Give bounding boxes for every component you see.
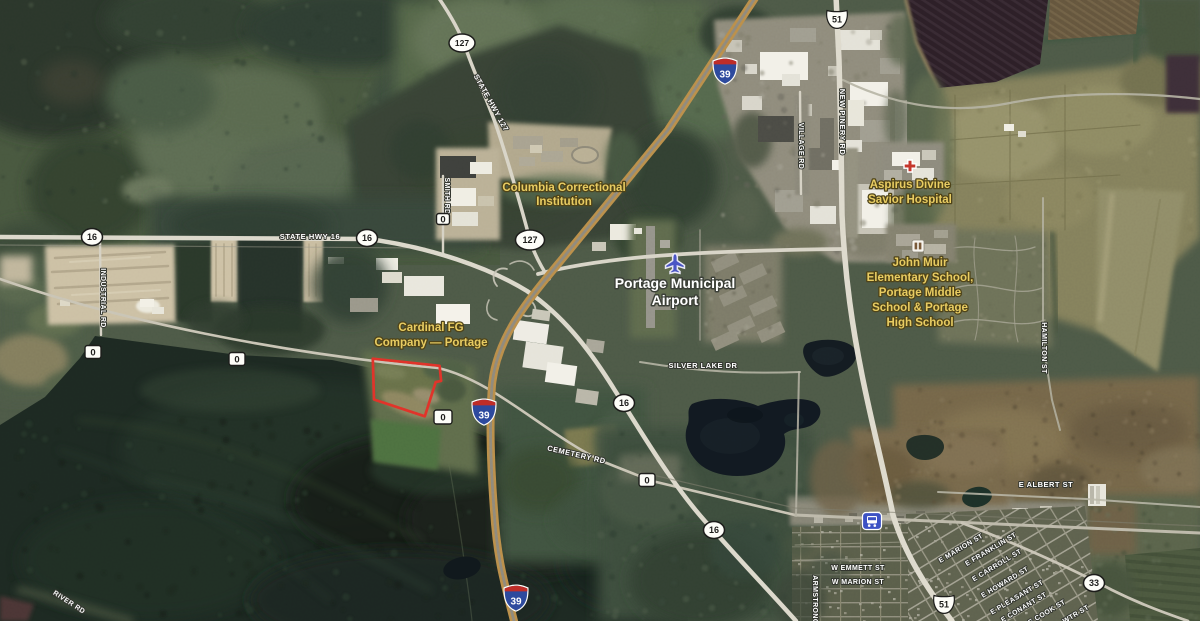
svg-text:0: 0 xyxy=(234,354,239,365)
svg-text:0: 0 xyxy=(440,214,445,225)
svg-text:0: 0 xyxy=(440,412,445,423)
svg-text:SILVER LAKE DR: SILVER LAKE DR xyxy=(669,361,738,370)
svg-text:51: 51 xyxy=(939,600,949,610)
svg-text:SMITH RD: SMITH RD xyxy=(443,177,450,214)
svg-text:16: 16 xyxy=(619,398,629,408)
svg-text:39: 39 xyxy=(510,597,522,608)
svg-text:51: 51 xyxy=(832,15,842,25)
svg-text:John Muir: John Muir xyxy=(893,257,948,269)
svg-text:39: 39 xyxy=(478,411,490,422)
svg-text:Columbia Correctional: Columbia Correctional xyxy=(502,182,625,194)
svg-text:Elementary School,: Elementary School, xyxy=(867,272,974,284)
svg-text:Company — Portage: Company — Portage xyxy=(374,337,487,349)
svg-text:39: 39 xyxy=(719,70,731,81)
svg-text:HAMILTON ST: HAMILTON ST xyxy=(1040,322,1047,374)
svg-text:Portage Middle: Portage Middle xyxy=(879,287,961,299)
svg-text:33: 33 xyxy=(1089,578,1099,588)
svg-text:16: 16 xyxy=(362,233,372,243)
svg-text:Cardinal FG: Cardinal FG xyxy=(398,322,463,334)
svg-text:0: 0 xyxy=(90,347,95,358)
svg-text:Aspirus Divine: Aspirus Divine xyxy=(870,179,951,191)
svg-text:W EMMETT ST: W EMMETT ST xyxy=(831,565,885,572)
svg-text:School & Portage: School & Portage xyxy=(872,302,968,314)
svg-text:16: 16 xyxy=(709,525,719,535)
svg-text:127: 127 xyxy=(455,38,469,48)
svg-text:16: 16 xyxy=(87,232,97,242)
svg-text:STATE HWY 16: STATE HWY 16 xyxy=(280,232,341,241)
svg-text:ARMSTRONG ST: ARMSTRONG ST xyxy=(811,575,818,621)
svg-text:127: 127 xyxy=(522,235,537,245)
svg-text:INDUSTRIAL RD: INDUSTRIAL RD xyxy=(99,268,106,328)
svg-text:NEW PINERY RD: NEW PINERY RD xyxy=(838,89,847,156)
svg-text:W MARION ST: W MARION ST xyxy=(832,579,885,586)
svg-text:Savior Hospital: Savior Hospital xyxy=(868,194,952,206)
svg-text:VILLAGE RD: VILLAGE RD xyxy=(797,123,804,169)
svg-text:0: 0 xyxy=(644,475,649,486)
svg-text:High School: High School xyxy=(886,317,953,329)
svg-text:Airport: Airport xyxy=(652,292,699,308)
svg-text:Institution: Institution xyxy=(536,196,592,208)
svg-text:E ALBERT ST: E ALBERT ST xyxy=(1019,480,1073,489)
svg-text:Portage Municipal: Portage Municipal xyxy=(615,275,736,291)
